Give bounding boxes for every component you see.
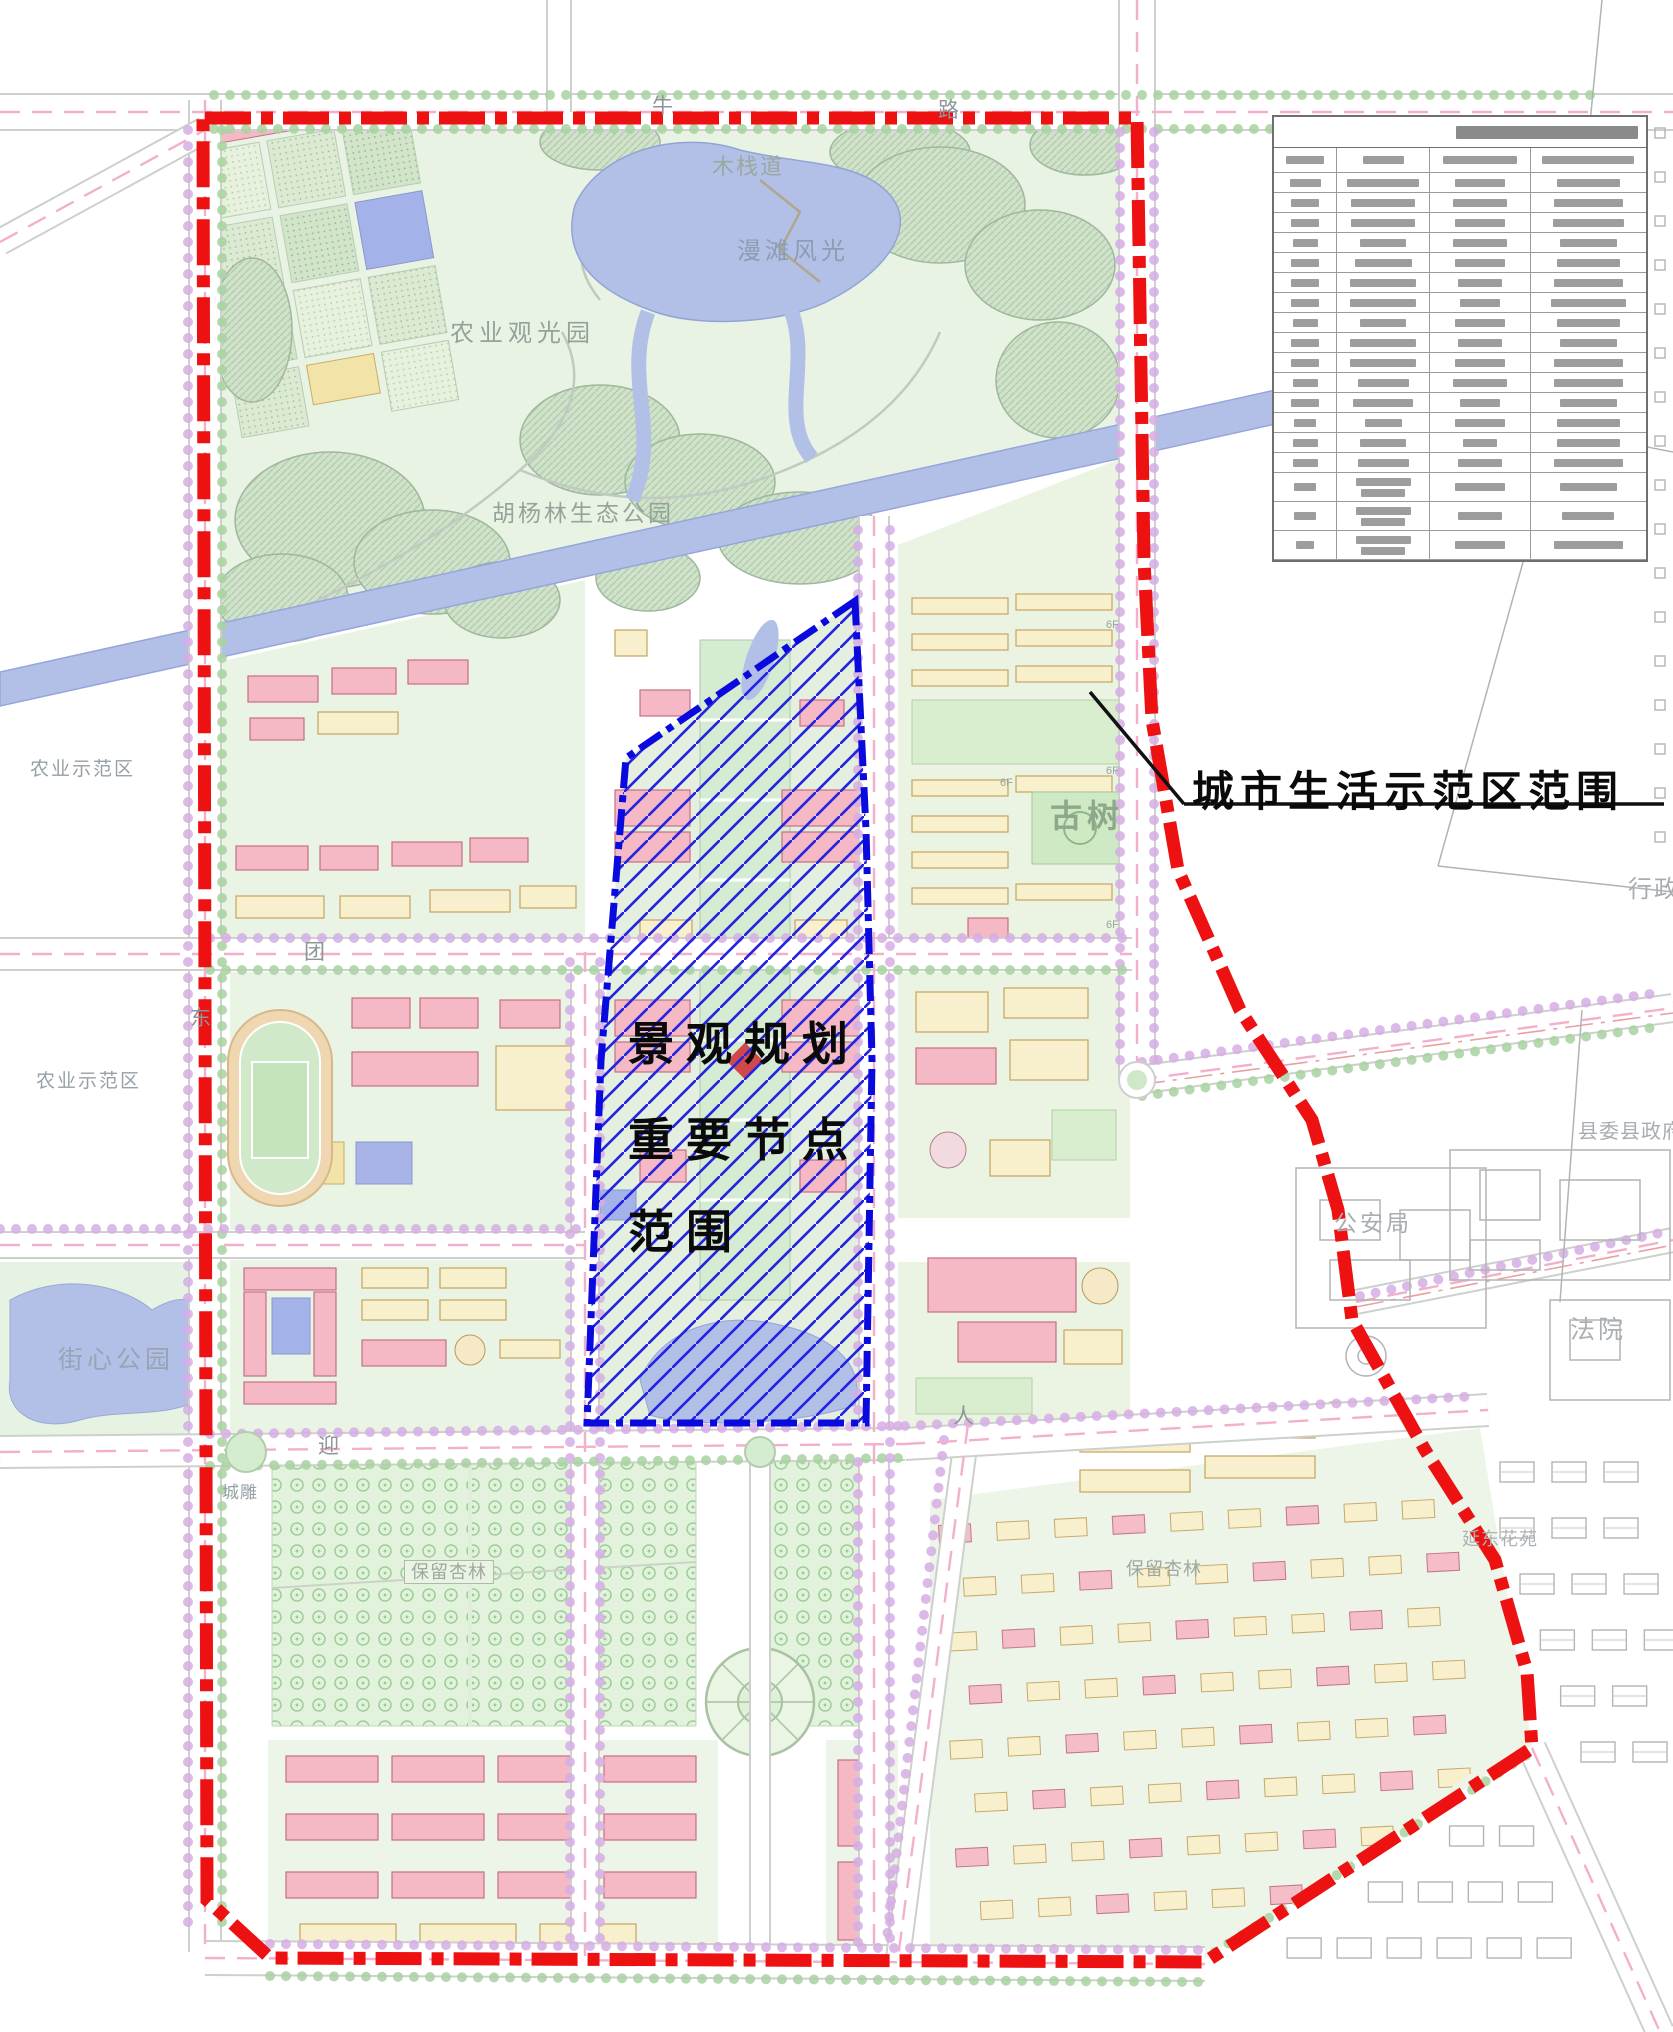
road-name-char: 牛 — [652, 96, 673, 117]
table-row — [1274, 353, 1646, 373]
label-admin: 行政 — [1628, 878, 1673, 902]
label-lake: 漫滩风光 — [737, 240, 849, 264]
table-title — [1274, 117, 1646, 148]
floor-tag: 6F — [1106, 920, 1119, 931]
boundary-annotation: 城市生活示范区范围 — [1192, 758, 1624, 819]
road-name-char: 人 — [953, 1406, 974, 1427]
floor-tag: 6F — [1000, 778, 1013, 789]
table-row — [1274, 213, 1646, 233]
node-annotation-line1: 景观规划 — [628, 1008, 860, 1074]
stadium — [228, 1010, 332, 1206]
node-annotation-line2: 重要节点 — [628, 1104, 860, 1170]
road-name-char: 东 — [190, 1008, 211, 1029]
label-police: 公安局 — [1334, 1212, 1412, 1235]
table-row — [1274, 333, 1646, 353]
label-orchard-1: 保留杏林 — [404, 1560, 494, 1584]
floor-tag: 6F — [1106, 766, 1119, 777]
table-row — [1274, 373, 1646, 393]
node-annotation-line3: 范围 — [628, 1196, 744, 1262]
road-name-char: 团 — [304, 942, 325, 963]
label-street-park: 街心公园 — [58, 1348, 174, 1373]
table-row — [1274, 293, 1646, 313]
table-row — [1274, 253, 1646, 273]
label-residence: 延东花苑 — [1462, 1530, 1538, 1548]
label-agri-demo-1: 农业示范区 — [30, 760, 135, 779]
table-row — [1274, 433, 1646, 453]
table-row — [1274, 473, 1646, 502]
table-row — [1274, 193, 1646, 213]
label-old-tree: 古树 — [1050, 800, 1124, 832]
road-name-char: 路 — [938, 100, 959, 121]
table-row — [1274, 393, 1646, 413]
table-row — [1274, 273, 1646, 293]
table-row — [1274, 531, 1646, 560]
label-county-gov: 县委县政府 — [1578, 1122, 1673, 1142]
table-row — [1274, 413, 1646, 433]
land-use-table — [1272, 115, 1648, 562]
table-row — [1274, 453, 1646, 473]
dimension-squares — [1655, 128, 1665, 842]
label-boardwalk: 木栈道 — [712, 156, 784, 178]
planning-map: 木栈道 漫滩风光 农业观光园 胡杨林生态公园 古树 农业示范区 农业示范区 街心… — [0, 0, 1673, 2032]
table-row — [1274, 148, 1646, 173]
label-agri-demo-2: 农业示范区 — [36, 1072, 141, 1091]
table-row — [1274, 502, 1646, 531]
label-court: 法院 — [1570, 1318, 1626, 1343]
floor-tag: 6F — [1106, 620, 1119, 631]
table-row — [1274, 313, 1646, 333]
road-name-char: 迎 — [318, 1436, 339, 1457]
label-sculpture: 城雕 — [222, 1484, 258, 1501]
table-row — [1274, 173, 1646, 193]
orchard-west — [272, 1452, 696, 1726]
label-agri-park: 农业观光园 — [450, 322, 595, 346]
label-orchard-2: 保留杏林 — [1126, 1560, 1202, 1578]
label-poplar-park: 胡杨林生态公园 — [492, 502, 674, 525]
blue-plot — [355, 191, 434, 270]
table-row — [1274, 233, 1646, 253]
